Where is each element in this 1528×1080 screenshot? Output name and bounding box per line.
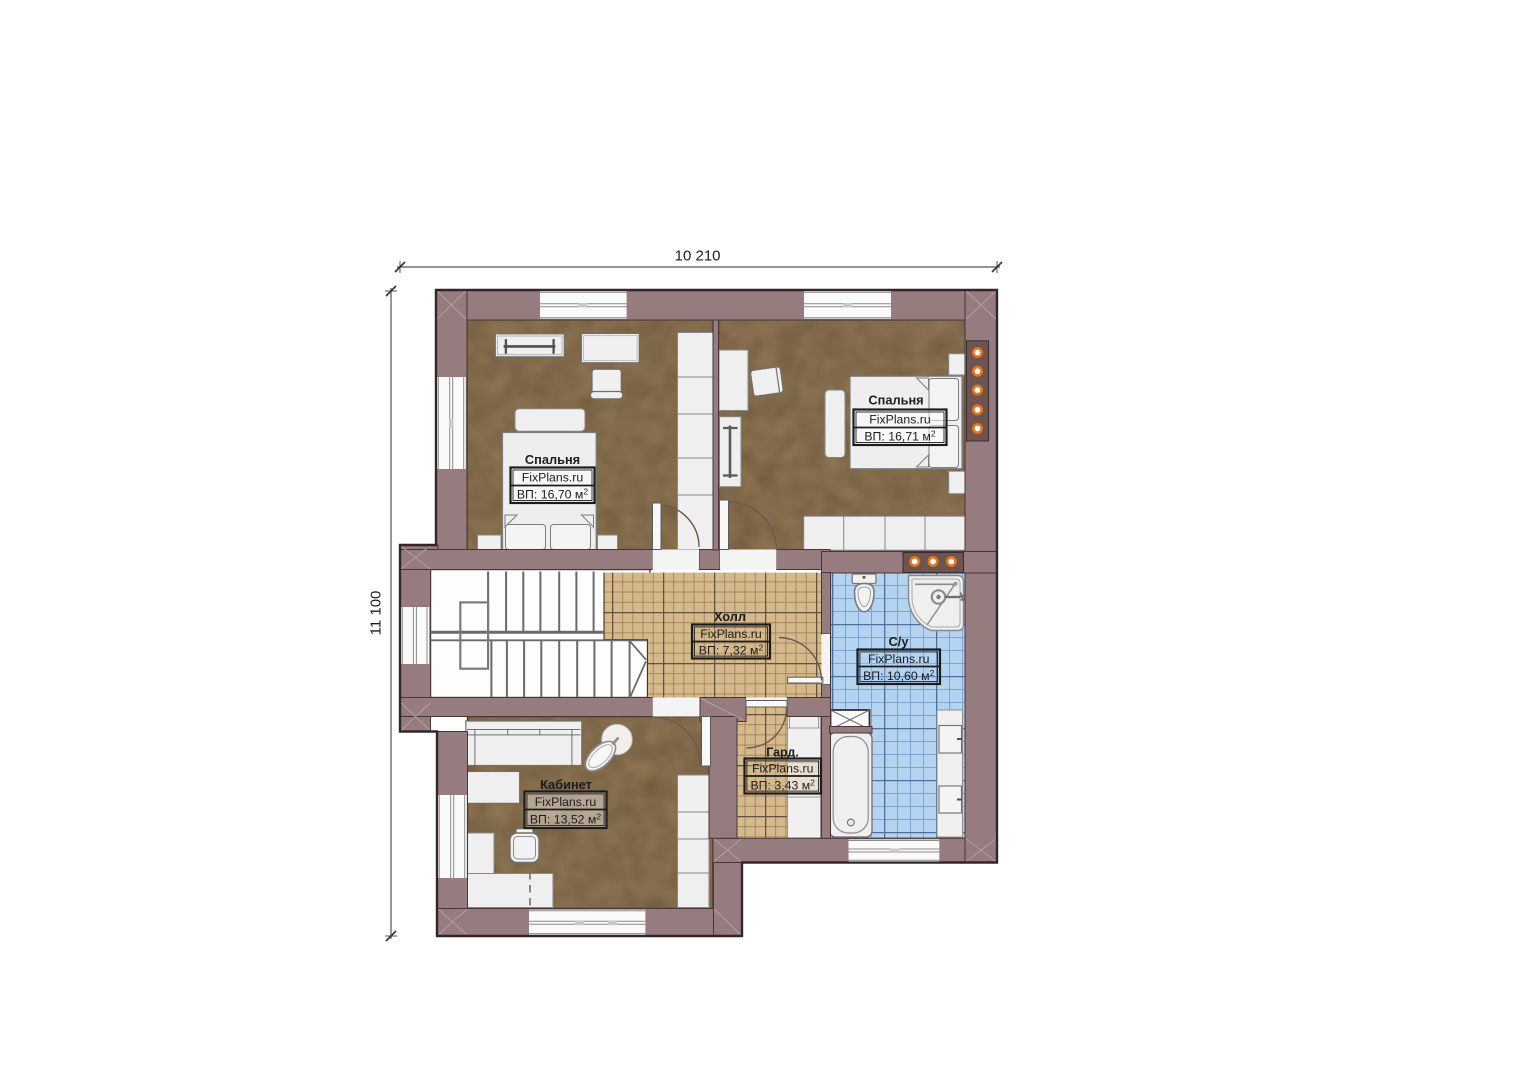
svg-text:ВП: 13,52 м2: ВП: 13,52 м2 xyxy=(530,812,602,827)
svg-text:FixPlans.ru: FixPlans.ru xyxy=(535,795,597,809)
svg-text:FixPlans.ru: FixPlans.ru xyxy=(752,762,814,776)
svg-text:С/у: С/у xyxy=(889,634,910,649)
svg-text:ВП: 16,71 м2: ВП: 16,71 м2 xyxy=(864,429,936,444)
svg-text:FixPlans.ru: FixPlans.ru xyxy=(700,627,762,641)
svg-text:ВП: 3,43 м2: ВП: 3,43 м2 xyxy=(750,778,815,793)
svg-text:FixPlans.ru: FixPlans.ru xyxy=(869,413,931,427)
svg-text:10 210: 10 210 xyxy=(675,248,721,265)
svg-text:FixPlans.ru: FixPlans.ru xyxy=(868,652,930,666)
svg-text:Холл: Холл xyxy=(714,609,746,624)
svg-text:ВП: 16,70 м2: ВП: 16,70 м2 xyxy=(517,487,589,502)
svg-text:FixPlans.ru: FixPlans.ru xyxy=(522,471,584,485)
svg-text:ВП: 7,32 м2: ВП: 7,32 м2 xyxy=(699,643,764,658)
svg-text:11 100: 11 100 xyxy=(368,591,385,636)
svg-text:ВП: 10,60 м2: ВП: 10,60 м2 xyxy=(863,668,935,683)
svg-text:Кабинет: Кабинет xyxy=(540,777,592,792)
svg-text:Спальня: Спальня xyxy=(868,393,923,408)
svg-text:Спальня: Спальня xyxy=(525,452,580,467)
